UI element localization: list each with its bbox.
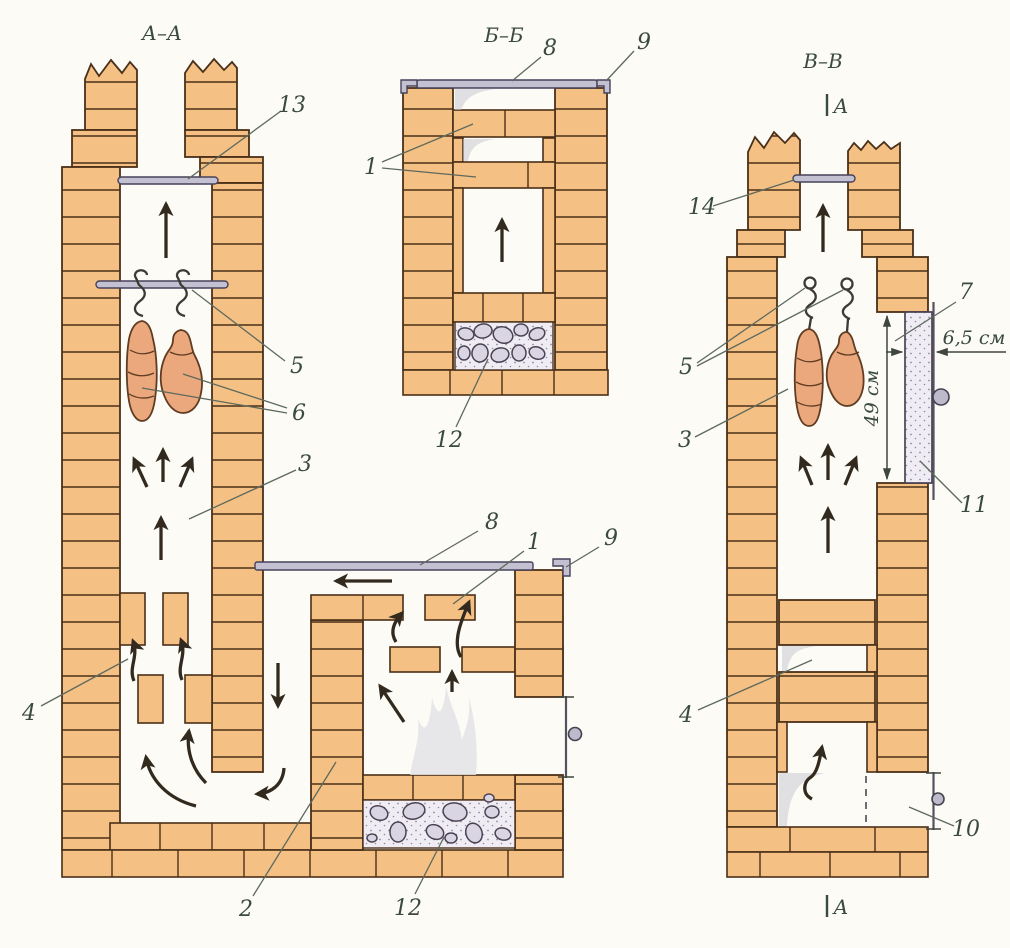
- smoke-chamber-door-knob: [933, 389, 949, 405]
- damper-rod-13: [118, 177, 218, 184]
- callout-12: 12: [435, 428, 463, 453]
- callout-3: 3: [678, 428, 692, 453]
- aa-firebox-right-wall-bottom: [515, 775, 563, 850]
- vv-masonry: [727, 132, 928, 877]
- vv-chimney-right-column: [848, 141, 900, 230]
- bb-lid-8: [417, 80, 597, 88]
- callout-13: 13: [278, 93, 306, 118]
- aa-lid-8: [255, 562, 533, 570]
- dimension-door-height: 49 см: [861, 370, 883, 428]
- vv-hanging-meat: [795, 329, 864, 426]
- bb-right-wall: [555, 88, 607, 370]
- callout-8: 8: [485, 510, 499, 535]
- aa-partition-cap: [311, 595, 403, 620]
- aa-stones-bed: [363, 794, 515, 848]
- section-bb-title: Б–Б: [483, 23, 524, 47]
- aa-right-step: [185, 130, 249, 157]
- diagram-canvas: А–А: [0, 0, 1010, 948]
- vv-base-row2: [727, 852, 928, 877]
- section-vv-title: В–В: [802, 49, 842, 73]
- aa-hanging-meat: [127, 321, 202, 421]
- callout-4: 4: [678, 703, 693, 728]
- section-aa-title: А–А: [140, 21, 182, 45]
- fire-flames: [410, 686, 477, 775]
- callout-14: 14: [688, 195, 716, 220]
- smoke-chamber-door-panel: [905, 312, 932, 483]
- callout-11: 11: [960, 493, 988, 518]
- callout-1: 1: [527, 530, 541, 555]
- vv-left-wall: [727, 257, 777, 827]
- callout-5: 5: [679, 355, 693, 380]
- vv-hooks: [805, 278, 853, 333]
- cut-marker-letter: А: [831, 895, 848, 919]
- section-aa: А–А: [21, 21, 618, 922]
- callout-2: 2: [238, 897, 253, 922]
- dimension-door-width: 6,5 см: [943, 327, 1006, 349]
- callout-9: 9: [637, 30, 651, 55]
- vv-right-step: [862, 230, 913, 257]
- callout-3: 3: [298, 452, 312, 477]
- aa-base-row: [62, 850, 563, 877]
- bb-baffle-row1: [453, 110, 555, 137]
- section-vv: В–В А: [678, 49, 1006, 919]
- aa-hooks: [135, 270, 189, 316]
- vv-door-lower: [866, 772, 944, 830]
- vv-right-wall-mid: [877, 483, 928, 772]
- cleanout-door-knob: [932, 793, 944, 805]
- aa-channel-floor-row: [110, 823, 311, 850]
- aa-chimney-left-column: [85, 60, 137, 130]
- aa-left-step: [72, 130, 137, 167]
- vv-row-above-slot: [779, 600, 875, 645]
- vv-callouts: 14 7 5 3 11 4 10: [678, 180, 988, 842]
- aa-chimney-right-column: [185, 59, 237, 130]
- vv-base-row1: [727, 827, 928, 852]
- firebox-door-knob: [569, 728, 582, 741]
- cut-marker-letter: А: [831, 94, 848, 118]
- callout-7: 7: [959, 280, 973, 305]
- callout-10: 10: [952, 817, 980, 842]
- aa-partition-wall: [311, 620, 363, 850]
- bb-floor-row: [453, 293, 555, 322]
- bb-left-wall: [403, 88, 453, 370]
- callout-1: 1: [364, 155, 378, 180]
- callout-9: 9: [604, 526, 618, 551]
- vv-right-wall-top: [877, 257, 928, 312]
- bb-baffle-row2: [453, 162, 555, 188]
- aa-firebox-right-wall-top: [515, 570, 563, 697]
- callout-5: 5: [290, 354, 304, 379]
- section-bb: Б–Б: [364, 23, 651, 453]
- hanging-rod-5: [96, 281, 228, 288]
- callout-4: 4: [21, 701, 36, 726]
- bb-stones-bed: [455, 322, 553, 370]
- aa-left-wall: [62, 167, 120, 850]
- bb-base-row: [403, 370, 608, 395]
- callout-8: 8: [543, 36, 557, 61]
- smokehouse-sections-figure: А–А: [0, 0, 1010, 948]
- damper-rod-14: [793, 175, 855, 182]
- aa-right-wall: [212, 183, 263, 772]
- vv-row-below-slot: [779, 672, 875, 722]
- callout-12: 12: [394, 896, 422, 921]
- vv-left-step: [737, 230, 785, 257]
- callout-6: 6: [292, 401, 306, 426]
- vv-cut-marker-top: А: [827, 94, 849, 118]
- vv-cut-marker-bottom: А: [827, 895, 849, 919]
